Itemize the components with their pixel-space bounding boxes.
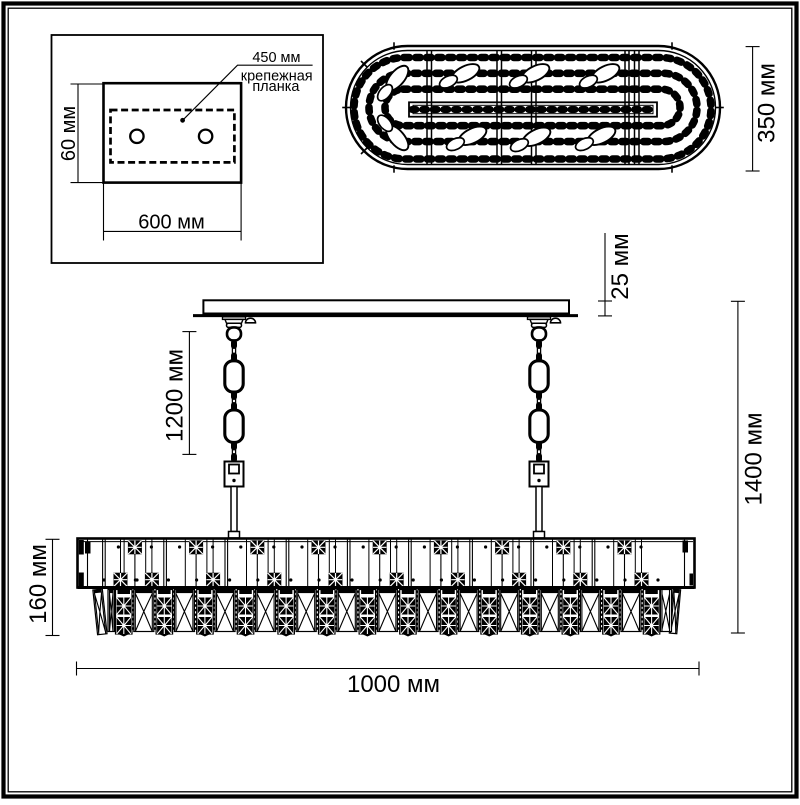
svg-text:450 мм: 450 мм bbox=[252, 50, 300, 66]
svg-text:160 мм: 160 мм bbox=[25, 544, 52, 624]
svg-text:1200 мм: 1200 мм bbox=[162, 349, 189, 442]
svg-text:1000 мм: 1000 мм bbox=[347, 671, 440, 698]
svg-text:600 мм: 600 мм bbox=[138, 212, 204, 234]
svg-text:1400 мм: 1400 мм bbox=[741, 412, 768, 505]
svg-text:60 мм: 60 мм bbox=[58, 106, 80, 161]
svg-text:планка: планка bbox=[252, 79, 300, 95]
svg-text:350 мм: 350 мм bbox=[754, 63, 781, 143]
svg-text:25 мм: 25 мм bbox=[607, 233, 634, 299]
